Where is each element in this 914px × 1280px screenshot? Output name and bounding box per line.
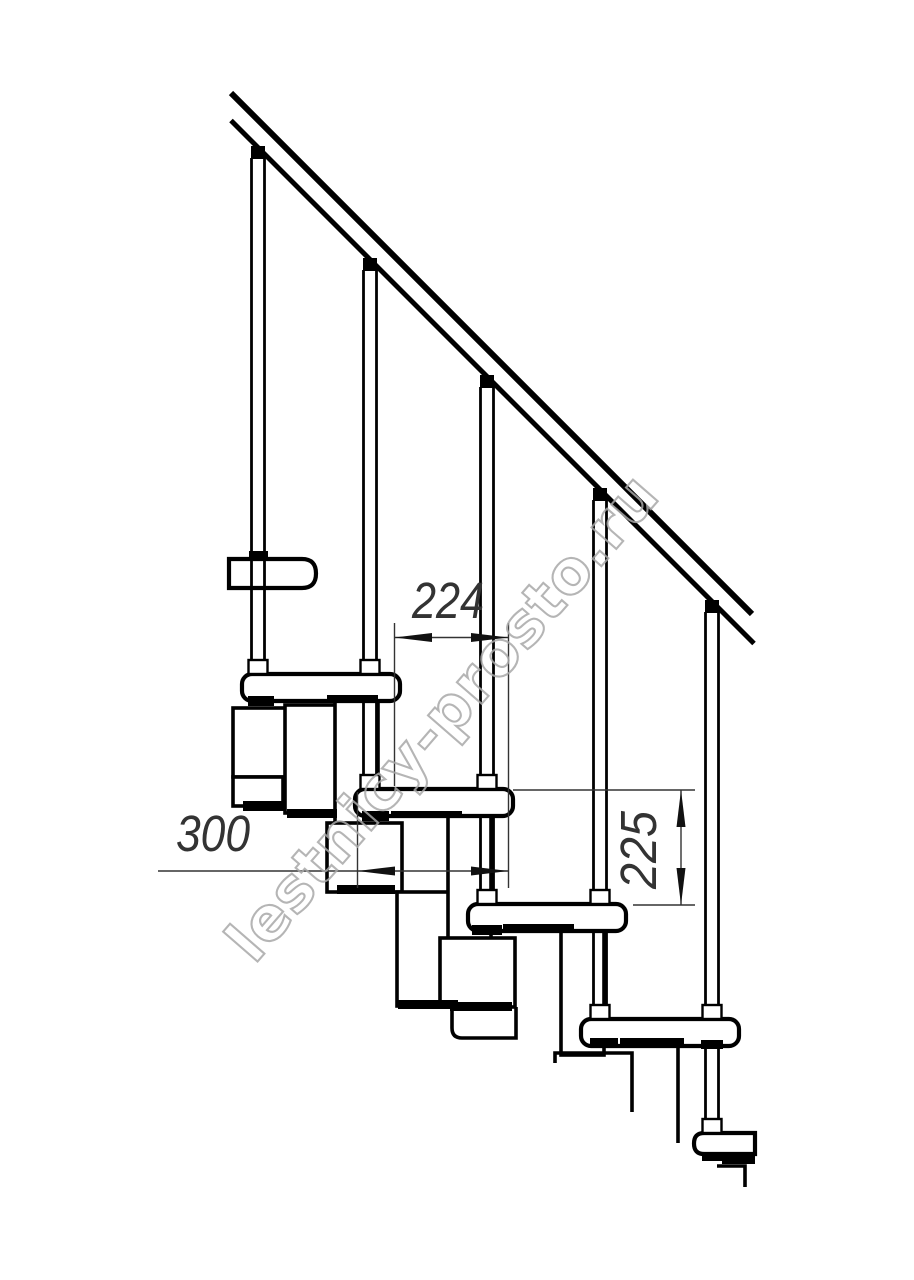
baluster-collar <box>591 890 610 904</box>
staircase-technical-drawing: 224 300 225 lestnicy-prosto.ru <box>0 0 914 1280</box>
spine-tube-collar <box>591 1005 610 1019</box>
baluster-collar <box>478 775 497 789</box>
dimension-label-step-rise: 225 <box>610 810 667 889</box>
handrail-upper-line <box>231 93 752 614</box>
spine-connector <box>450 1002 512 1011</box>
dimension-label-tread-length: 300 <box>176 805 250 862</box>
spine-tube-collar <box>478 890 497 904</box>
spine-tube-collar <box>703 1119 722 1133</box>
spine-bracket <box>717 1166 745 1187</box>
baluster-5 <box>703 600 722 1133</box>
step-5 <box>694 1133 755 1154</box>
spine-module <box>440 938 515 1007</box>
tread-connector <box>620 1038 684 1046</box>
tread-connector <box>503 924 574 932</box>
drawing-canvas: 224 300 225 lestnicy-prosto.ru <box>0 0 914 1280</box>
baluster-collar <box>361 660 380 674</box>
spine-connector <box>398 1000 458 1009</box>
dimension-arrow <box>677 790 686 827</box>
dimension-arrow <box>677 868 686 905</box>
baluster-collar <box>249 660 268 674</box>
landing-module <box>233 708 289 777</box>
spine-connector <box>337 885 395 894</box>
tread-connector <box>472 925 502 935</box>
dimension-arrow <box>395 633 433 642</box>
baluster-1 <box>249 146 268 674</box>
dimension-label-step-run: 224 <box>411 572 484 629</box>
tread-connector <box>327 695 378 703</box>
baluster-collar <box>703 1005 722 1019</box>
tread-connector <box>590 1038 618 1048</box>
spine-module-partial <box>555 1053 632 1112</box>
spine-module-partial <box>452 1007 516 1038</box>
tread-connector <box>248 696 274 706</box>
floor-nose-bracket <box>229 559 316 588</box>
